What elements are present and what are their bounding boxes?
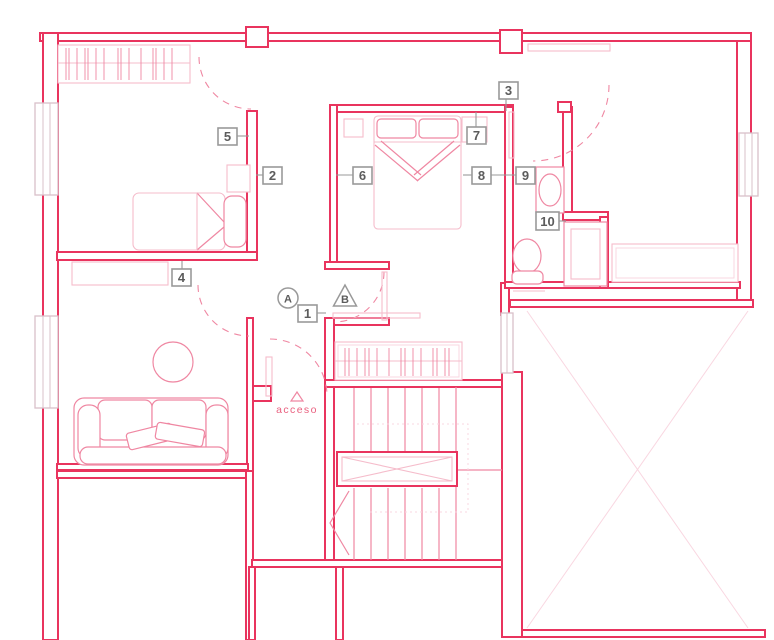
- window-left-lower: [35, 316, 58, 408]
- double-bed: [374, 116, 461, 229]
- door-arc-access: [270, 339, 327, 396]
- staircase: [330, 387, 502, 560]
- svg-text:A: A: [284, 294, 292, 306]
- svg-text:3: 3: [505, 83, 512, 98]
- room-label-2: 2: [263, 167, 282, 184]
- svg-text:2: 2: [269, 168, 276, 183]
- room-label-3: 3: [499, 82, 518, 99]
- stair-void: [337, 452, 457, 486]
- access-annotation: acceso: [276, 392, 318, 416]
- sofa: [74, 398, 228, 465]
- nightstand-bedroom1: [227, 165, 250, 192]
- room-label-8: 8: [472, 167, 491, 184]
- shower-tray: [564, 222, 607, 286]
- svg-text:8: 8: [478, 168, 485, 183]
- room-label-4: 4: [172, 269, 191, 286]
- closet-hatched: [58, 45, 190, 83]
- door-arc-living: [198, 285, 249, 336]
- terrace-cross: [527, 311, 748, 628]
- svg-text:1: 1: [304, 306, 311, 321]
- section-marker-a: A: [278, 288, 298, 308]
- window-right: [739, 133, 758, 196]
- toilet: [512, 239, 545, 291]
- access-triangle-icon: [291, 392, 303, 401]
- floor-plan-drawing: acceso 5 2 4 1 6: [0, 0, 774, 640]
- svg-text:5: 5: [224, 129, 231, 144]
- single-bed: [133, 193, 246, 250]
- floor-plan: acceso 5 2 4 1 6: [0, 0, 774, 640]
- access-label: acceso: [276, 404, 318, 416]
- shelf-living: [72, 262, 168, 285]
- bathroom-sink: [536, 167, 564, 213]
- room-label-1: 1: [298, 305, 317, 322]
- svg-text:B: B: [341, 294, 349, 306]
- door-header: [528, 44, 610, 51]
- bench: [612, 244, 738, 282]
- svg-text:4: 4: [178, 270, 186, 285]
- window-corridor: [501, 313, 513, 373]
- round-table: [153, 342, 193, 382]
- room-label-9: 9: [516, 167, 535, 184]
- room-label-6: 6: [353, 167, 372, 184]
- room-label-7: 7: [467, 127, 486, 144]
- section-marker-b: B: [334, 285, 357, 306]
- window-left-upper: [35, 103, 58, 195]
- room-label-5: 5: [218, 128, 237, 145]
- svg-text:9: 9: [522, 168, 529, 183]
- svg-text:7: 7: [473, 128, 480, 143]
- nightstand-left: [344, 119, 363, 137]
- svg-text:6: 6: [359, 168, 366, 183]
- door-arc-bedroom1: [199, 57, 251, 109]
- svg-text:10: 10: [540, 214, 554, 229]
- room-label-10: 10: [536, 212, 559, 230]
